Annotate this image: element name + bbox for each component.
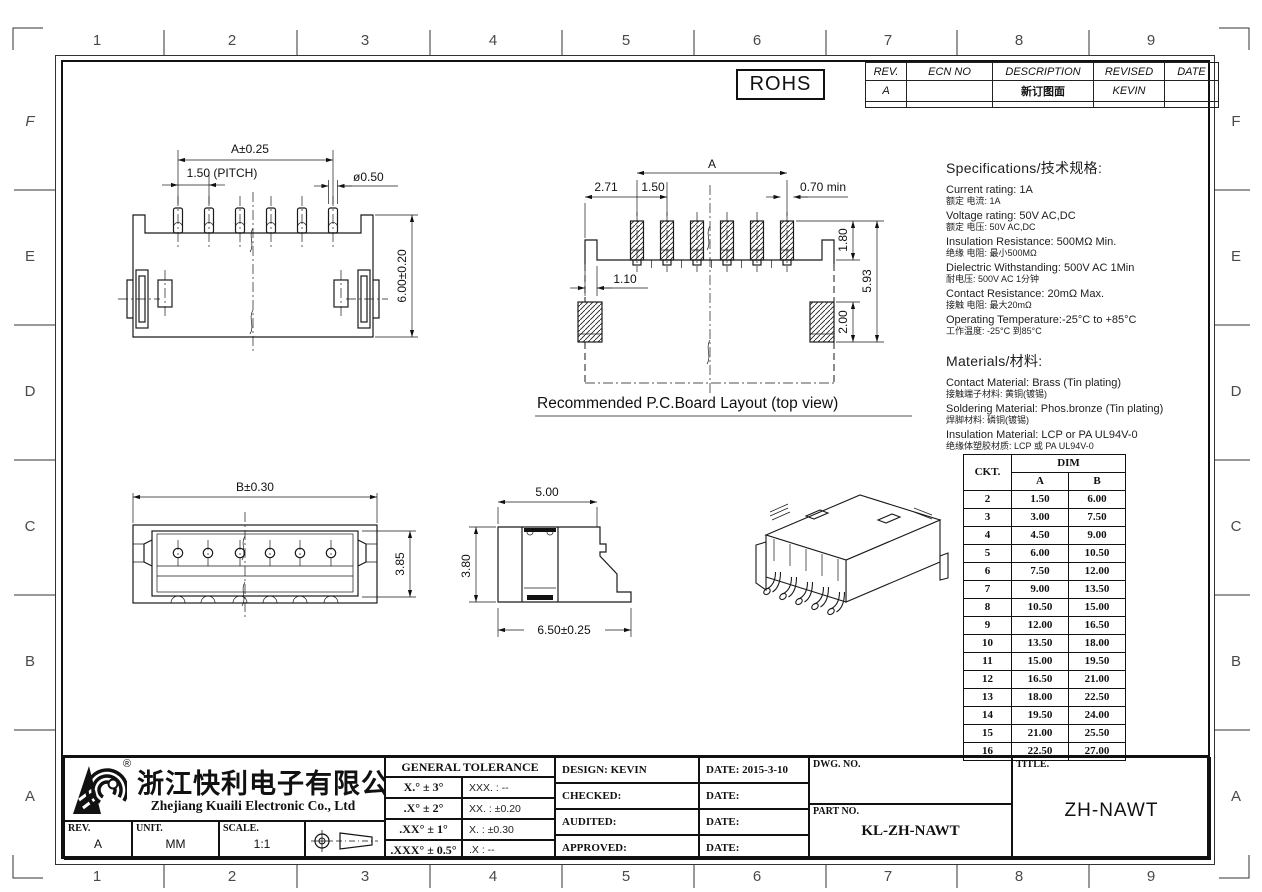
dim-row: 56.0010.50	[964, 545, 1126, 563]
tolerance-linear-cell: XXX. : --	[462, 777, 555, 798]
pcb-layout-view: A 2.71 1.50 0.70 min 1.10 1.80 2.00	[535, 157, 912, 416]
col-b-header: B	[1069, 473, 1126, 491]
pcb-dim-180: 1.80	[836, 228, 850, 252]
ecn-col-header: ECN NO	[907, 63, 993, 81]
dim-row: 79.0013.50	[964, 581, 1126, 599]
approved-date-cell: DATE:	[699, 835, 809, 860]
pin-top-view: A±0.25 1.50 (PITCH) ø0.50 6.00±0.20	[118, 142, 418, 352]
col-a-header: A	[1012, 473, 1069, 491]
tolerance-linear-cell: X. : ±0.30	[462, 819, 555, 840]
rev-cell: REV. A	[64, 821, 132, 860]
spec-item: Insulation Resistance: 500MΩ Min.绝缘 电阻: …	[946, 236, 1236, 258]
dim-row: 1318.0022.50	[964, 689, 1126, 707]
grid-col-label: 8	[1005, 30, 1033, 52]
grid-row-label: F	[16, 111, 44, 133]
part-no-value: KL-ZH-NAWT	[810, 823, 1011, 840]
grid-row-label: D	[16, 381, 44, 403]
revision-table: REV. ECN NO DESCRIPTION REVISED DATE A 新…	[865, 62, 1219, 108]
pcb-dim-271: 2.71	[594, 180, 618, 194]
checked-date-cell: DATE:	[699, 783, 809, 809]
pcb-dim-200: 2.00	[836, 310, 850, 334]
spec-item: Current rating: 1A额定 电流: 1A	[946, 184, 1236, 206]
drawing-sheet: .ln{stroke:#1a1a1a;stroke-width:1.2;fill…	[0, 0, 1262, 892]
scale-cell: SCALE. 1:1	[219, 821, 305, 860]
dim-table: CKT. DIM A B 21.506.00 33.007.50 44.509.…	[963, 454, 1126, 761]
approved-cell: APPROVED:	[555, 835, 699, 860]
grid-col-label: 3	[351, 866, 379, 888]
ecn-cell	[907, 81, 993, 102]
grid-row-label: A	[16, 786, 44, 808]
pcb-dim-593: 5.93	[860, 269, 874, 293]
dim-pitch-label: 1.50 (PITCH)	[187, 166, 258, 180]
spec-item: Contact Resistance: 20mΩ Max.接触 电阻: 最大20…	[946, 288, 1236, 310]
title-cell: TITLE. ZH-NAWT	[1012, 757, 1211, 860]
dim-row: 1521.0025.50	[964, 725, 1126, 743]
revised-cell: KEVIN	[1094, 81, 1165, 102]
desc-cell: 新订图面	[993, 81, 1094, 102]
grid-col-label: 2	[218, 30, 246, 52]
grid-row-label: A	[1222, 786, 1250, 808]
tolerance-angle-cell: X.° ± 3°	[385, 777, 462, 798]
rev-col-header: REV.	[866, 63, 907, 81]
rohs-badge: ROHS	[736, 69, 825, 100]
dim-row: 33.007.50	[964, 509, 1126, 527]
date-col-header: DATE	[1165, 63, 1219, 81]
grid-row-label: C	[16, 516, 44, 538]
front-dim-b: B±0.30	[236, 480, 274, 494]
pcb-dim-150: 1.50	[641, 180, 665, 194]
checked-cell: CHECKED:	[555, 783, 699, 809]
title-value: ZH-NAWT	[1013, 800, 1210, 822]
rev-cell: A	[866, 81, 907, 102]
pcb-caption: Recommended P.C.Board Layout (top view)	[537, 395, 838, 412]
materials-title: Materials/材料:	[946, 351, 1236, 371]
design-date-cell: DATE: 2015-3-10	[699, 757, 809, 783]
specifications-block: Specifications/技术规格: Current rating: 1A额…	[946, 158, 1236, 340]
tolerance-linear-cell: XX. : ±0.20	[462, 798, 555, 819]
side-dim-500: 5.00	[535, 485, 559, 499]
specifications-title: Specifications/技术规格:	[946, 158, 1236, 178]
grid-col-label: 2	[218, 866, 246, 888]
dim-row: 1115.0019.50	[964, 653, 1126, 671]
grid-col-label: 5	[612, 866, 640, 888]
dwg-no-cell: DWG. NO.	[809, 757, 1012, 804]
side-dim-650: 6.50±0.25	[537, 623, 591, 637]
grid-row-label: F	[1222, 111, 1250, 133]
grid-col-label: 9	[1137, 30, 1165, 52]
design-cell: DESIGN: KEVIN	[555, 757, 699, 783]
tolerance-title-cell: GENERAL TOLERANCE	[385, 757, 555, 777]
dim-header: DIM	[1012, 455, 1126, 473]
tolerance-linear-cell: .X : --	[462, 840, 555, 860]
revision-header-row: REV. ECN NO DESCRIPTION REVISED DATE	[866, 63, 1219, 81]
grid-row-label: E	[16, 246, 44, 268]
grid-col-label: 7	[874, 866, 902, 888]
tolerance-angle-cell: .X° ± 2°	[385, 798, 462, 819]
side-view: 5.00 3.80 6.50±0.25	[459, 485, 631, 637]
grid-col-label: 5	[612, 30, 640, 52]
grid-col-label: 1	[83, 866, 111, 888]
grid-col-label: 1	[83, 30, 111, 52]
grid-col-label: 6	[743, 866, 771, 888]
projection-symbol-icon	[306, 822, 384, 859]
grid-col-label: 4	[479, 866, 507, 888]
dim-row: 21.506.00	[964, 491, 1126, 509]
grid-row-label: C	[1222, 516, 1250, 538]
pcb-dim-070: 0.70 min	[800, 180, 846, 194]
pcb-dim-a: A	[708, 157, 716, 171]
revision-filler-row	[866, 102, 1219, 108]
grid-row-label: B	[1222, 651, 1250, 673]
dim-row: 912.0016.50	[964, 617, 1126, 635]
desc-col-header: DESCRIPTION	[993, 63, 1094, 81]
materials-block: Materials/材料: Contact Material: Brass (T…	[946, 351, 1236, 455]
spec-item: Dielectric Withstanding: 500V AC 1Min耐电压…	[946, 262, 1236, 284]
tolerance-angle-cell: .XXX° ± 0.5°	[385, 840, 462, 860]
material-item: Soldering Material: Phos.bronze (Tin pla…	[946, 403, 1236, 425]
dim-row: 67.5012.00	[964, 563, 1126, 581]
revision-row: A 新订图面 KEVIN	[866, 81, 1219, 102]
side-dim-380: 3.80	[459, 554, 473, 578]
grid-col-label: 7	[874, 30, 902, 52]
company-logo	[69, 760, 127, 818]
spec-item: Operating Temperature:-25°C to +85°C工作温度…	[946, 314, 1236, 336]
dim-row: 1419.5024.00	[964, 707, 1126, 725]
audited-cell: AUDITED:	[555, 809, 699, 835]
dim-height-label: 6.00±0.20	[395, 249, 409, 303]
projection-cell	[305, 821, 385, 860]
title-block: ® 浙江快利电子有限公司 Zhejiang Kuaili Electronic …	[62, 755, 1209, 858]
audited-date-cell: DATE:	[699, 809, 809, 835]
grid-col-label: 8	[1005, 866, 1033, 888]
front-dim-385: 3.85	[393, 552, 407, 576]
registered-mark: ®	[123, 758, 131, 770]
grid-col-label: 6	[743, 30, 771, 52]
company-cell: ® 浙江快利电子有限公司 Zhejiang Kuaili Electronic …	[64, 757, 385, 821]
dim-a-label: A±0.25	[231, 142, 269, 156]
company-name-en: Zhejiang Kuaili Electronic Co., Ltd	[123, 798, 383, 814]
dim-row: 1216.5021.00	[964, 671, 1126, 689]
isometric-view	[756, 495, 948, 616]
dim-row: 1013.5018.00	[964, 635, 1126, 653]
dim-dia-label: ø0.50	[353, 170, 384, 184]
tolerance-angle-cell: .XX° ± 1°	[385, 819, 462, 840]
pcb-dim-110: 1.10	[613, 272, 637, 286]
dim-table-header: CKT. DIM	[964, 455, 1126, 473]
grid-col-label: 9	[1137, 866, 1165, 888]
unit-cell: UNIT. MM	[132, 821, 219, 860]
date-cell	[1165, 81, 1219, 102]
company-name-cn: 浙江快利电子有限公司	[137, 762, 383, 801]
revised-col-header: REVISED	[1094, 63, 1165, 81]
spec-item: Voltage rating: 50V AC,DC额定 电压: 50V AC,D…	[946, 210, 1236, 232]
dim-row: 810.5015.00	[964, 599, 1126, 617]
grid-row-label: B	[16, 651, 44, 673]
part-no-cell: PART NO. KL-ZH-NAWT	[809, 804, 1012, 860]
dim-row: 44.509.00	[964, 527, 1126, 545]
material-item: Contact Material: Brass (Tin plating)接触端…	[946, 377, 1236, 399]
material-item: Insulation Material: LCP or PA UL94V-0绝缘…	[946, 429, 1236, 451]
grid-col-label: 3	[351, 30, 379, 52]
front-view: B±0.30 3.85	[133, 480, 416, 618]
grid-col-label: 4	[479, 30, 507, 52]
ckt-header: CKT.	[964, 455, 1012, 491]
